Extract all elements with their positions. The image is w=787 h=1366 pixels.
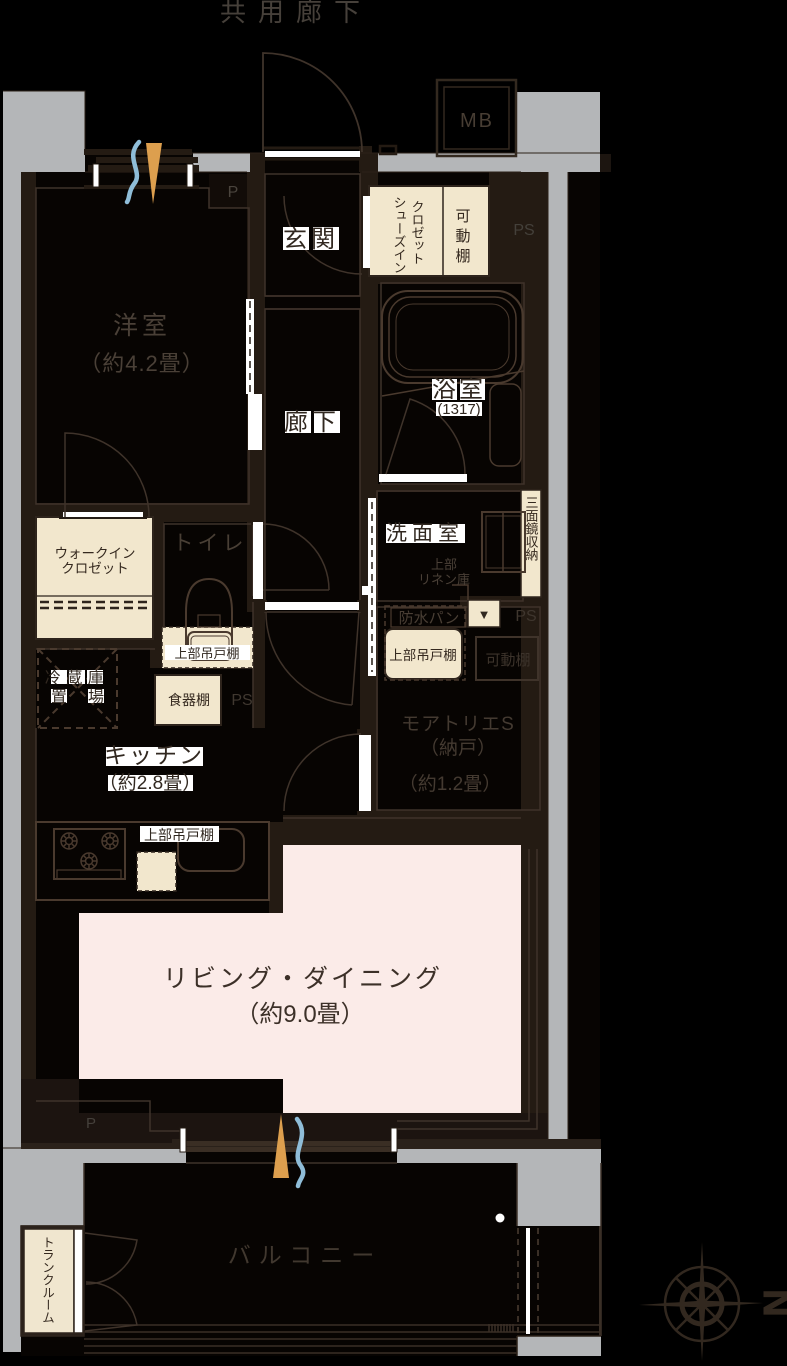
svg-text:PS: PS [231,692,252,709]
svg-text:可動棚: 可動棚 [485,652,530,669]
svg-text:MB: MB [460,110,494,132]
svg-text:玄関: 玄関 [283,226,339,253]
svg-text:▼: ▼ [478,607,491,622]
svg-text:上部吊戸棚: 上部吊戸棚 [174,646,239,661]
svg-text:シューズイン: シューズイン [392,196,407,274]
svg-text:（約2.8畳）: （約2.8畳） [99,772,201,794]
svg-text:トランクルーム: トランクルーム [40,1236,54,1324]
svg-text:PS: PS [515,608,536,625]
svg-text:可動棚: 可動棚 [454,208,471,268]
svg-text:上部吊戸棚: 上部吊戸棚 [389,648,457,663]
svg-text:（約4.2畳）: （約4.2畳） [79,351,205,376]
svg-text:防水パン: 防水パン [399,610,460,627]
svg-text:ウォークイン: ウォークイン [55,546,136,561]
svg-text:食器棚: 食器棚 [168,692,210,708]
svg-text:上部吊戸棚: 上部吊戸棚 [144,827,214,843]
svg-text:バルコニー: バルコニー [228,1242,383,1268]
svg-text:廊下: 廊下 [284,409,340,436]
svg-text:洋室: 洋室 [113,312,171,340]
svg-text:（約9.0畳）: （約9.0畳） [235,1001,364,1028]
svg-text:場: 場 [88,688,104,706]
svg-text:(1317): (1317) [437,401,480,418]
svg-text:（約1.2畳）: （約1.2畳） [399,773,501,795]
svg-text:共用廊下: 共用廊下 [220,0,372,27]
svg-text:置: 置 [51,689,67,706]
svg-text:キッチン: キッチン [104,742,204,768]
svg-text:P: P [228,184,239,201]
svg-text:N: N [755,1289,787,1316]
svg-text:リネン庫: リネン庫 [418,572,470,587]
svg-text:（納戸）: （納戸） [420,737,496,759]
svg-text:クロゼット: クロゼット [61,561,129,576]
svg-text:P: P [86,1115,96,1132]
svg-text:三面鏡収納: 三面鏡収納 [524,496,539,562]
svg-text:冷蔵庫: 冷蔵庫 [45,669,110,687]
svg-text:リビング・ダイニング: リビング・ダイニング [163,965,443,993]
svg-text:上部: 上部 [431,557,457,572]
svg-text:浴室: 浴室 [432,376,486,403]
svg-text:クロゼット: クロゼット [410,200,425,265]
svg-text:PS: PS [513,222,534,239]
svg-text:トイレ: トイレ [173,532,248,555]
svg-text:洗面室: 洗面室 [386,522,464,545]
svg-text:モアトリエS: モアトリエS [401,714,515,735]
